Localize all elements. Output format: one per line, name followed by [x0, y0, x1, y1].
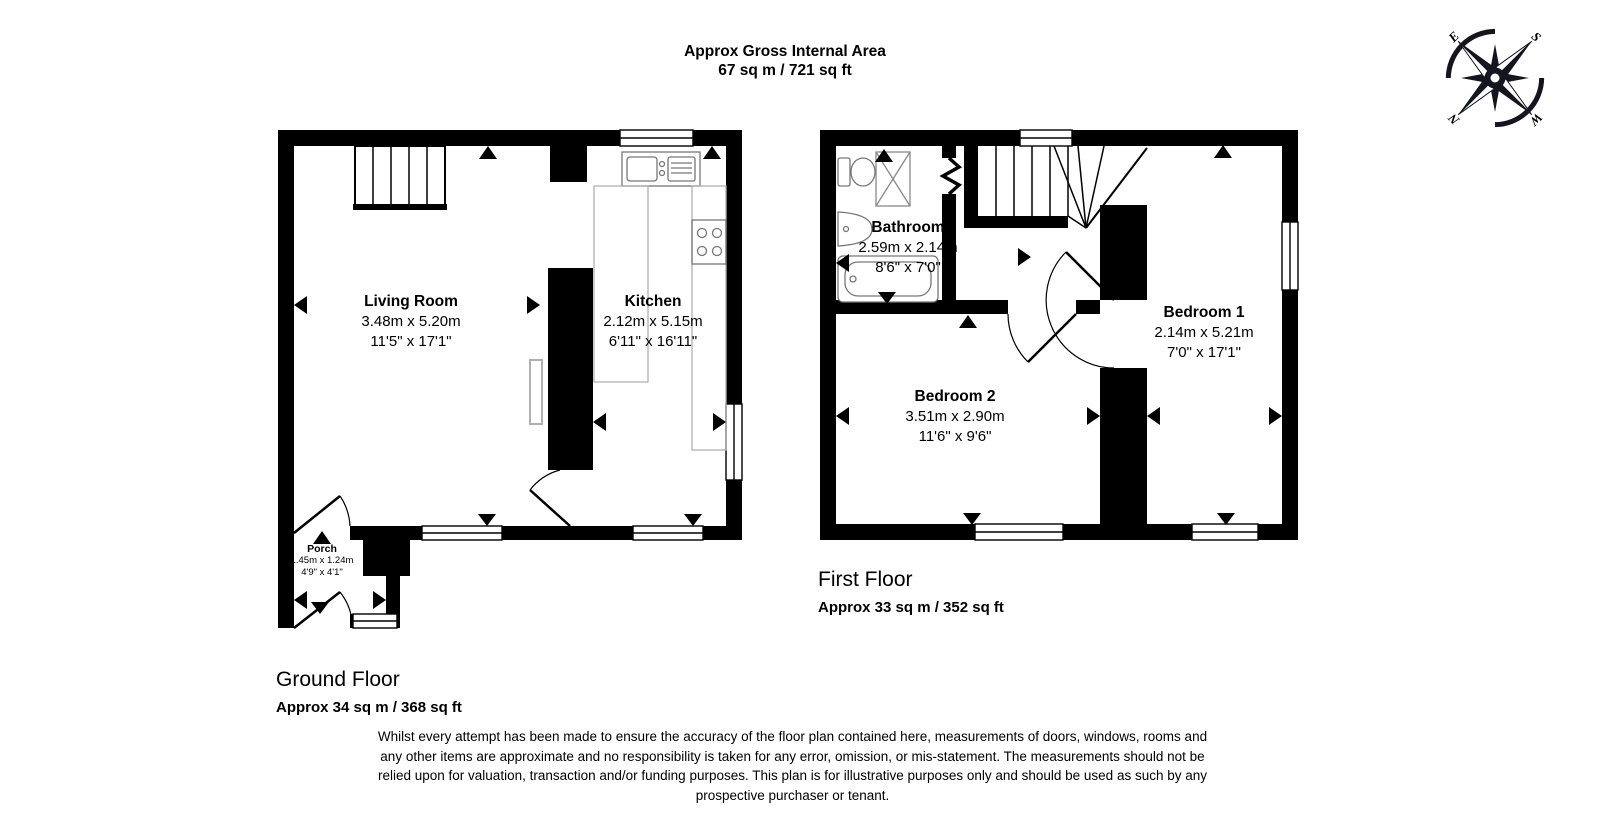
radiator: [530, 360, 542, 424]
first-floor-area: Approx 33 sq m / 352 sq ft: [818, 599, 1004, 616]
page-title-line2: 67 sq m / 721 sq ft: [535, 61, 1035, 80]
room-name: Bedroom 1: [1104, 303, 1304, 323]
door-leaf: [294, 496, 340, 533]
wall: [278, 614, 294, 628]
door-leaf: [530, 490, 570, 526]
wall: [964, 146, 978, 216]
bifold-door: [943, 158, 959, 194]
measure-arrow-right-icon: [1018, 248, 1031, 266]
measure-arrow-up-icon: [1214, 145, 1232, 158]
page-title-line1: Approx Gross Internal Area: [535, 42, 1035, 61]
measure-arrow-up-icon: [703, 146, 721, 159]
room-label-bedroom-2: Bedroom 2 3.51m x 2.90m 11'6" x 9'6": [855, 387, 1055, 447]
first-floor-caption: First Floor: [818, 568, 913, 592]
measure-arrow-left-icon: [836, 407, 849, 425]
measure-arrow-down-icon: [1217, 513, 1235, 525]
room-dim-metric: 2.14m x 5.21m: [1104, 323, 1304, 343]
wall: [1100, 205, 1147, 300]
measure-arrow-up-icon: [959, 315, 977, 328]
measure-arrow-right-icon: [713, 413, 726, 431]
room-dim-imperial: 8'6" x 7'0": [808, 258, 1008, 278]
room-name: Living Room: [301, 292, 521, 312]
measure-arrow-up-icon: [479, 146, 497, 159]
measure-arrow-right-icon: [1087, 407, 1100, 425]
wall: [820, 130, 836, 540]
room-dim-imperial: 4'9" x 4'1": [270, 567, 374, 579]
room-label-kitchen: Kitchen 2.12m x 5.15m 6'11" x 16'11": [553, 292, 753, 352]
room-name: Bathroom: [808, 218, 1008, 238]
wall: [1100, 368, 1147, 524]
measure-arrow-right-icon: [373, 591, 386, 609]
measure-arrow-right-icon: [1269, 407, 1282, 425]
door-leaf: [1028, 314, 1076, 362]
room-label-porch: Porch 1.45m x 1.24m 4'9" x 4'1": [270, 543, 374, 579]
measure-arrow-down-icon: [963, 513, 981, 525]
door-swing-arc: [1008, 314, 1028, 362]
floorplan-page: Approx Gross Internal Area 67 sq m / 721…: [0, 0, 1600, 834]
door-swing-arc: [530, 470, 560, 490]
room-name: Kitchen: [553, 292, 753, 312]
room-label-bedroom-1: Bedroom 1 2.14m x 5.21m 7'0" x 17'1": [1104, 303, 1304, 363]
staircase: [353, 146, 447, 210]
compass-rose-icon: N E S W: [1425, 8, 1565, 148]
room-dim-metric: 3.48m x 5.20m: [301, 312, 521, 332]
page-title: Approx Gross Internal Area 67 sq m / 721…: [535, 42, 1035, 80]
ground-floor-caption: Ground Floor: [276, 668, 400, 692]
wall: [942, 146, 956, 158]
measure-arrow-left-icon: [294, 591, 307, 609]
ground-floor-area: Approx 34 sq m / 368 sq ft: [276, 699, 462, 716]
room-label-bathroom: Bathroom 2.59m x 2.14m 8'6" x 7'0": [808, 218, 1008, 278]
hob-icon: [692, 220, 726, 264]
room-name: Bedroom 2: [855, 387, 1055, 407]
toilet-icon: [838, 158, 875, 186]
room-dim-imperial: 6'11" x 16'11": [553, 332, 753, 352]
room-dim-metric: 3.51m x 2.90m: [855, 407, 1055, 427]
door-swing-arc: [340, 496, 350, 526]
measure-arrow-down-icon: [684, 514, 702, 526]
room-name: Porch: [270, 543, 374, 555]
room-dim-metric: 1.45m x 1.24m: [270, 555, 374, 567]
wall: [1076, 300, 1100, 314]
compass-rotated-group: N E S W: [1425, 8, 1565, 148]
room-dim-imperial: 11'6" x 9'6": [855, 427, 1055, 447]
room-dim-metric: 2.12m x 5.15m: [553, 312, 753, 332]
kitchen-sink: [622, 152, 700, 186]
room-dim-metric: 2.59m x 2.14m: [808, 238, 1008, 258]
room-dim-imperial: 7'0" x 17'1": [1104, 343, 1304, 363]
measure-arrow-down-icon: [478, 514, 496, 526]
room-label-living-room: Living Room 3.48m x 5.20m 11'5" x 17'1": [301, 292, 521, 352]
measure-arrow-right-icon: [527, 296, 540, 314]
wall: [550, 146, 587, 182]
disclaimer-text: Whilst every attempt has been made to en…: [370, 727, 1215, 805]
measure-arrow-left-icon: [1147, 407, 1160, 425]
room-dim-imperial: 11'5" x 17'1": [301, 332, 521, 352]
measure-arrow-left-icon: [593, 413, 606, 431]
